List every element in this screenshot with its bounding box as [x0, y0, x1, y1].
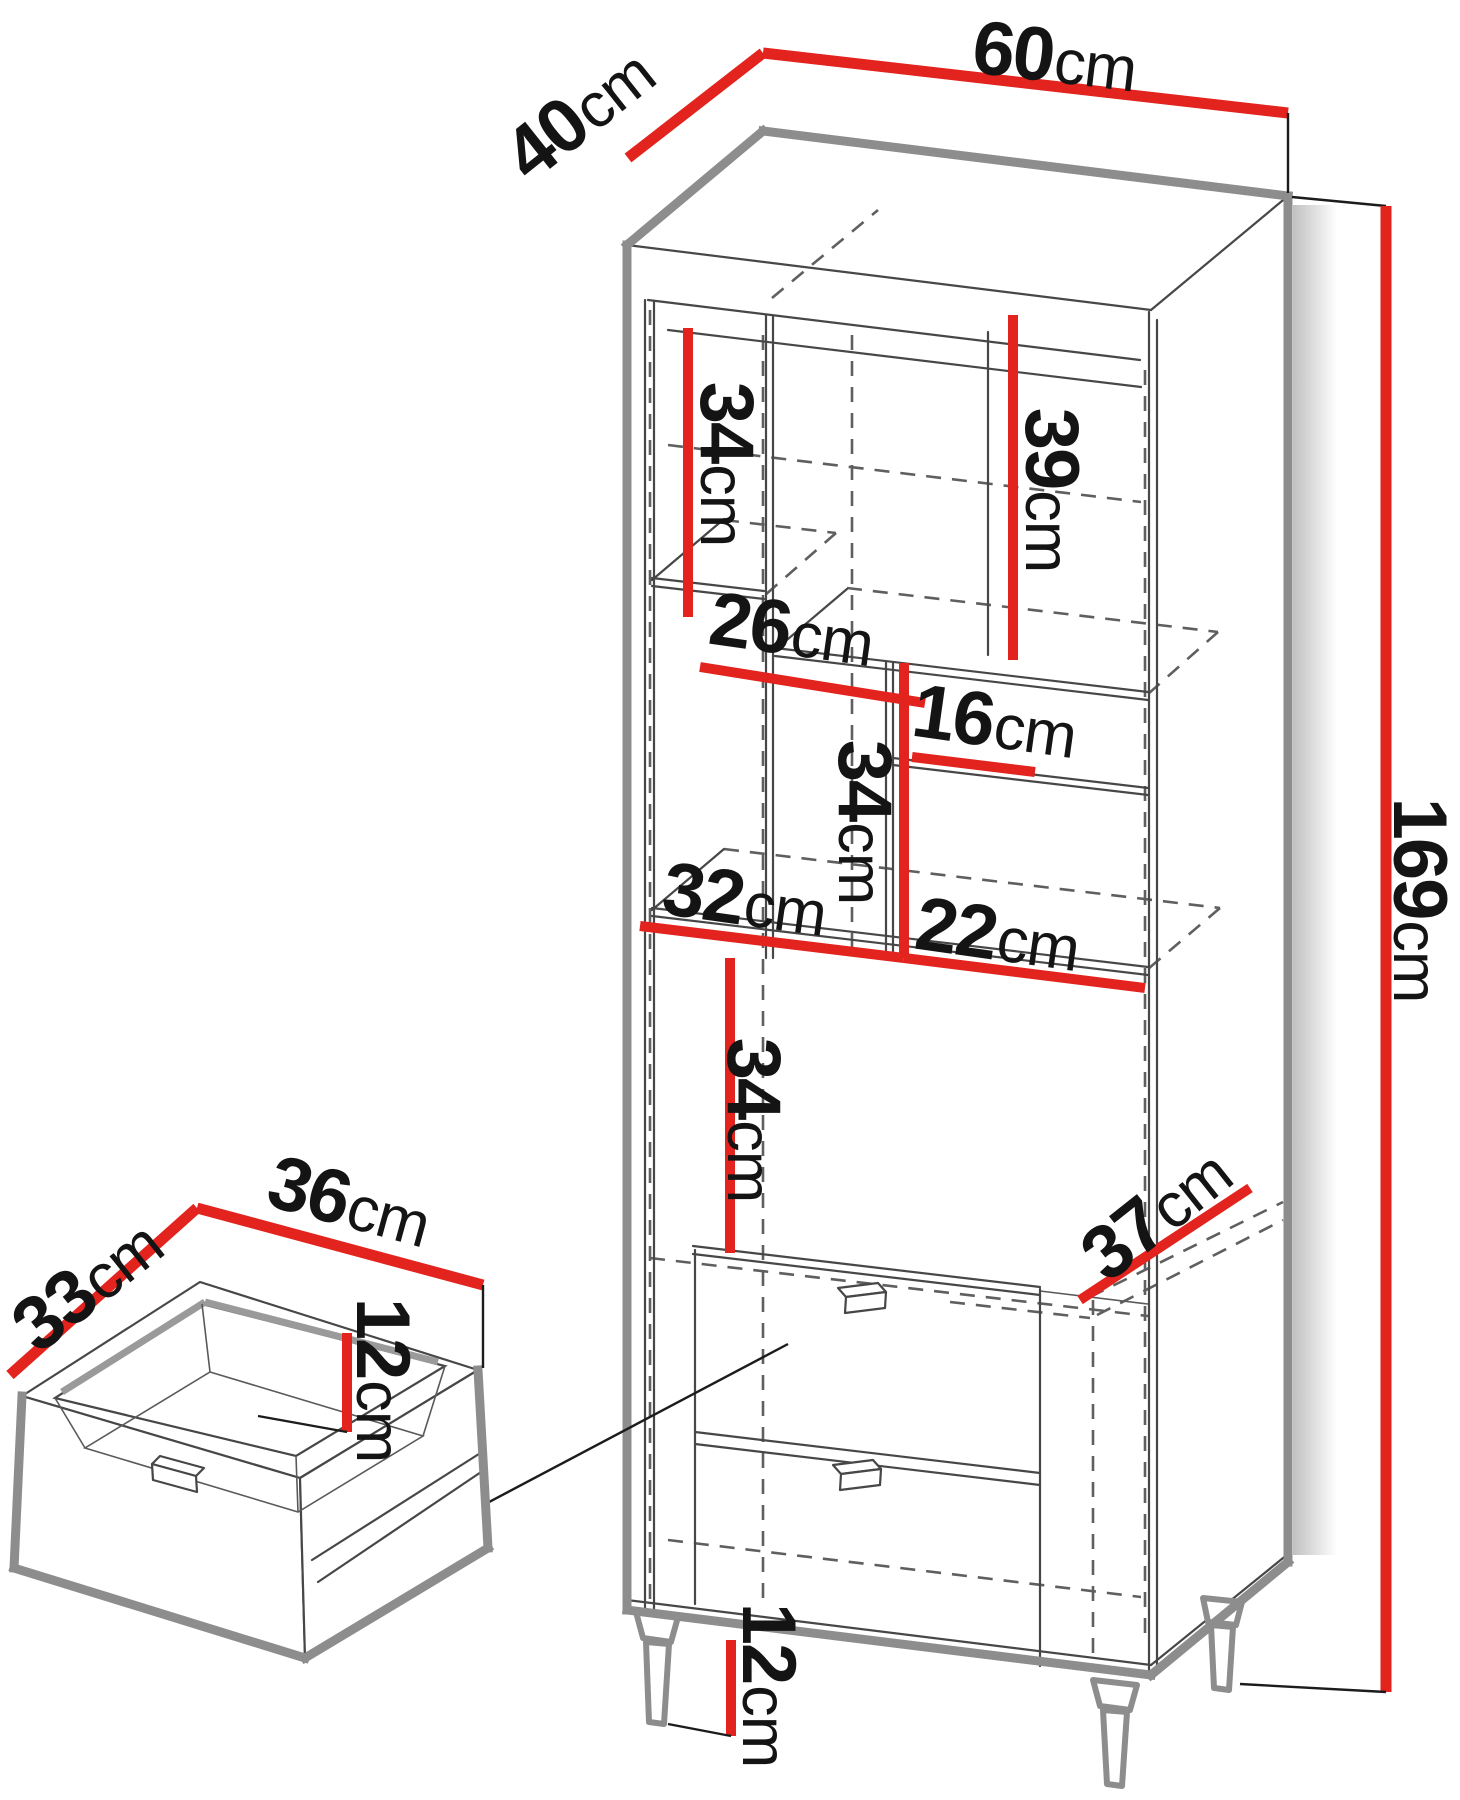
dimension-diagram: 40cm 60cm 169cm 34cm 39cm 26cm 16cm 34cm…	[0, 0, 1460, 1800]
diagram-stage: 40cm 60cm 169cm 34cm 39cm 26cm 16cm 34cm…	[0, 0, 1460, 1800]
dimension-label-12-legs: 12cm	[726, 1603, 811, 1768]
dimension-label-40: 40cm	[488, 29, 670, 198]
dimension-label-34-lower: 34cm	[711, 1038, 796, 1203]
dimension-label-34-upper-left: 34cm	[684, 382, 769, 547]
front-right-leg	[1093, 1680, 1137, 1710]
dimension-label-39: 39cm	[1009, 408, 1094, 573]
dimension-label-12-drawer: 12cm	[340, 1298, 425, 1463]
cabinet-right-shadow	[1293, 205, 1337, 1555]
dimension-label-60: 60cm	[968, 5, 1141, 109]
dimension-label-169: 169cm	[1377, 798, 1460, 1003]
dimension-label-34-middle: 34cm	[822, 740, 907, 905]
dimension-legs-12: 12cm	[668, 1603, 811, 1768]
